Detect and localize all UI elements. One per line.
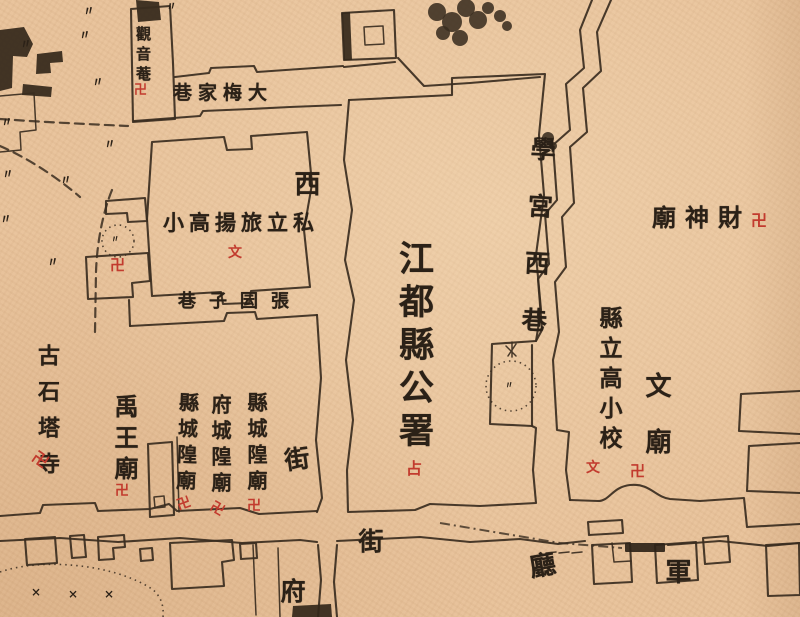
- block-school: [147, 132, 312, 304]
- street-edge: [334, 545, 337, 617]
- block-county-office: [349, 74, 545, 426]
- building-outline: [106, 198, 147, 222]
- building-outline: [170, 540, 234, 589]
- building-outline: [747, 443, 800, 493]
- block-county-office: [344, 100, 536, 512]
- building-outline: [0, 93, 36, 152]
- building-filled: [22, 84, 52, 97]
- building-filled: [136, 0, 161, 22]
- street-edge: [344, 62, 395, 67]
- street-edge: [134, 105, 341, 121]
- block-guanyin-an: [131, 6, 175, 122]
- map-linework: [0, 0, 800, 617]
- building-outline: [25, 537, 57, 565]
- map-canvas[interactable]: 觀音菴巷家梅大西小高揚旅立私巷子囩張江都縣公署學宮西巷廟神財縣立高小校文廟古石塔…: [0, 0, 800, 617]
- building-outline: [98, 535, 125, 560]
- lane-edge-east: [553, 0, 611, 500]
- street-edge: [0, 538, 317, 543]
- building-filled: [0, 27, 33, 91]
- building-edge: [278, 548, 280, 617]
- tree-cluster: [428, 0, 494, 46]
- hatch-marks: [546, 552, 582, 553]
- building-outline: [240, 543, 257, 559]
- street-edge: [175, 66, 343, 77]
- plant-glyph: [506, 342, 516, 357]
- building-filled: [36, 51, 63, 74]
- path-dashed: [0, 146, 80, 197]
- building-outline: [140, 548, 153, 561]
- street-edge: [316, 315, 322, 512]
- bar-filled: [292, 604, 332, 617]
- block-edge: [177, 437, 179, 512]
- building-edge: [253, 545, 256, 615]
- building-outline: [703, 536, 730, 564]
- boundary-dashed: [95, 190, 112, 332]
- dotted-circle-east: [486, 361, 536, 411]
- street-edge: [130, 312, 317, 326]
- bridge-bar: [625, 543, 665, 552]
- street-edge: [0, 503, 317, 516]
- building-inner-court: [364, 26, 384, 45]
- dotted-garden-arc: [0, 564, 163, 617]
- building-outline: [766, 543, 800, 596]
- building-outline: [739, 391, 800, 434]
- building-outline: [588, 520, 623, 535]
- lane-edge-west: [536, 0, 592, 341]
- street-edge: [129, 300, 130, 326]
- street-edge: [398, 58, 540, 86]
- dotted-circle-west: [102, 225, 134, 257]
- path-dashed: [0, 119, 128, 126]
